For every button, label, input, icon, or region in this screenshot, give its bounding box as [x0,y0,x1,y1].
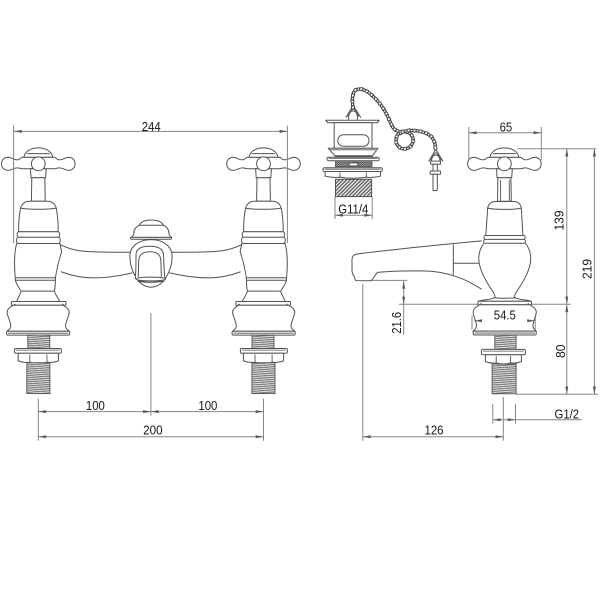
svg-text:G11/4: G11/4 [338,201,368,216]
svg-text:200: 200 [143,422,163,437]
svg-text:219: 219 [580,259,595,279]
svg-text:126: 126 [425,423,444,438]
svg-text:G1/2: G1/2 [555,406,580,421]
svg-text:100: 100 [198,398,217,413]
svg-text:21.6: 21.6 [389,312,404,334]
svg-text:65: 65 [500,119,513,134]
svg-text:244: 244 [142,119,161,134]
svg-text:54.5: 54.5 [494,307,516,322]
svg-text:80: 80 [553,345,568,359]
svg-text:139: 139 [552,211,567,231]
svg-text:100: 100 [86,398,105,413]
